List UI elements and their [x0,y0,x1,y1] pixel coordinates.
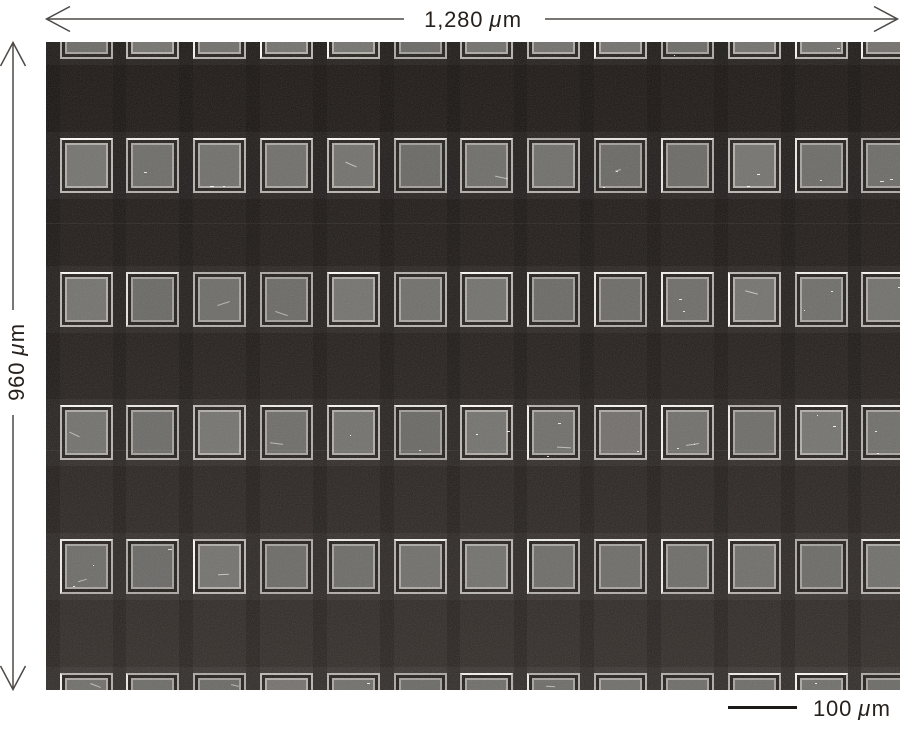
column-shadow-stripe [113,42,127,690]
micro-square [728,138,781,193]
surface-scratch [745,291,758,295]
micro-square [527,539,580,594]
micro-square [594,272,647,327]
surface-speck [558,423,560,424]
micro-square [126,539,179,594]
surface-speck [350,435,352,436]
micro-square [460,405,513,460]
micro-square [661,539,714,594]
micro-square [193,539,246,594]
micro-square [861,405,900,460]
micro-square [861,539,900,594]
surface-speck [837,48,840,49]
meter-symbol: m [4,323,29,342]
column-shadow-stripe [246,42,260,690]
micro-square [327,272,380,327]
micro-square [193,42,246,59]
column-shadow-stripe [447,42,461,690]
surface-scratch [218,574,229,575]
micro-square [460,42,513,59]
surface-scratch [217,301,230,306]
micro-square [728,405,781,460]
micro-square [327,673,380,690]
micro-square [594,138,647,193]
micro-square [327,539,380,594]
column-shadow-stripe [647,42,661,690]
micro-square [193,138,246,193]
surface-scratch [275,311,287,316]
micro-square [661,272,714,327]
micro-square [861,42,900,59]
surface-scratch [70,432,80,437]
surface-scratch [346,162,357,168]
micro-square [460,539,513,594]
column-shadow-stripe [46,42,60,690]
micro-square [60,673,113,690]
micro-square [460,138,513,193]
micro-square [126,272,179,327]
micro-square [661,673,714,690]
surface-speck [875,431,877,432]
surface-speck [820,180,823,181]
scan-line [46,450,900,451]
micro-square [795,539,848,594]
surface-speck [815,683,817,684]
surface-speck [880,181,883,182]
micro-square [861,272,900,327]
surface-speck [547,456,549,457]
micro-square [527,272,580,327]
left-height-label: 960μm [6,323,28,401]
meter-symbol: m [872,696,891,721]
micro-square [661,138,714,193]
surface-scratch [495,175,508,179]
micro-square [861,138,900,193]
micro-square [527,405,580,460]
left-height-value: 960 [4,362,29,401]
scale-bar [728,706,797,709]
micro-square [728,539,781,594]
micro-square [260,42,313,59]
surface-scratch [546,685,555,687]
micro-square [661,405,714,460]
micro-square [795,42,848,59]
top-width-label: 1,280μm [424,9,522,31]
micro-square [60,138,113,193]
micro-square [460,272,513,327]
micro-square [193,272,246,327]
surface-speck [674,55,675,56]
surface-speck [144,172,147,173]
micro-square [594,673,647,690]
micro-square [594,539,647,594]
micro-square [260,272,313,327]
micro-square [60,42,113,59]
meter-symbol: m [503,7,522,32]
micro-square [327,42,380,59]
surface-speck [93,565,95,566]
column-shadow-stripe [848,42,862,690]
surface-speck [603,187,605,188]
surface-speck [817,415,818,416]
micro-square [327,138,380,193]
surface-scratch [90,683,101,688]
micro-square [795,405,848,460]
surface-speck [757,174,760,175]
surface-speck [73,586,76,587]
micro-square [394,405,447,460]
surface-scratch [557,447,571,449]
micro-square [527,673,580,690]
micro-square [394,42,447,59]
micro-square [527,138,580,193]
surface-speck [507,431,510,432]
surface-speck [223,186,224,187]
surface-scratch [615,169,621,172]
surface-speck [476,434,478,435]
scan-line [46,223,900,224]
micro-square [60,272,113,327]
surface-speck [210,186,213,187]
micro-square [594,405,647,460]
sem-micrograph [46,42,900,690]
surface-speck [168,549,171,550]
micro-symbol: μ [489,7,502,32]
micro-square [126,405,179,460]
surface-speck [890,179,893,180]
micro-square [661,42,714,59]
column-shadow-stripe [179,42,193,690]
micro-square [728,272,781,327]
micro-square [594,42,647,59]
micro-square [394,272,447,327]
micro-square [260,405,313,460]
surface-scratch [78,579,87,582]
micro-square [60,539,113,594]
micro-square [260,673,313,690]
micro-square [126,138,179,193]
surface-speck [831,291,833,292]
surface-speck [833,426,836,427]
surface-speck [804,310,805,311]
micro-square [861,673,900,690]
micro-square [394,673,447,690]
scale-bar-value: 100 [813,696,852,721]
surface-scratch [231,684,239,687]
surface-speck [877,453,879,454]
micro-square [728,673,781,690]
micro-square [394,539,447,594]
top-width-value: 1,280 [424,7,483,32]
micro-symbol: μ [4,343,29,356]
surface-speck [367,683,370,684]
micro-square [795,272,848,327]
column-shadow-stripe [580,42,594,690]
figure: 1,280μm 960μm 100μm [0,0,900,736]
micro-square [126,673,179,690]
column-shadow-stripe [781,42,795,690]
surface-speck [679,299,681,300]
micro-square [126,42,179,59]
micro-square [460,673,513,690]
micro-square [728,42,781,59]
column-shadow-stripe [380,42,394,690]
micro-square [527,42,580,59]
micro-square [260,138,313,193]
column-shadow-stripe [514,42,528,690]
micro-square [260,539,313,594]
surface-speck [747,186,750,187]
micro-square [795,138,848,193]
scale-bar-label: 100μm [813,698,891,720]
surface-scratch [270,442,283,445]
column-shadow-stripe [313,42,327,690]
micro-symbol: μ [858,696,871,721]
surface-speck [683,311,685,312]
micro-square [193,673,246,690]
micro-square [795,673,848,690]
column-shadow-stripe [714,42,728,690]
micro-square [60,405,113,460]
surface-scratch [686,443,699,446]
micro-square [193,405,246,460]
micro-square [327,405,380,460]
micro-square [394,138,447,193]
